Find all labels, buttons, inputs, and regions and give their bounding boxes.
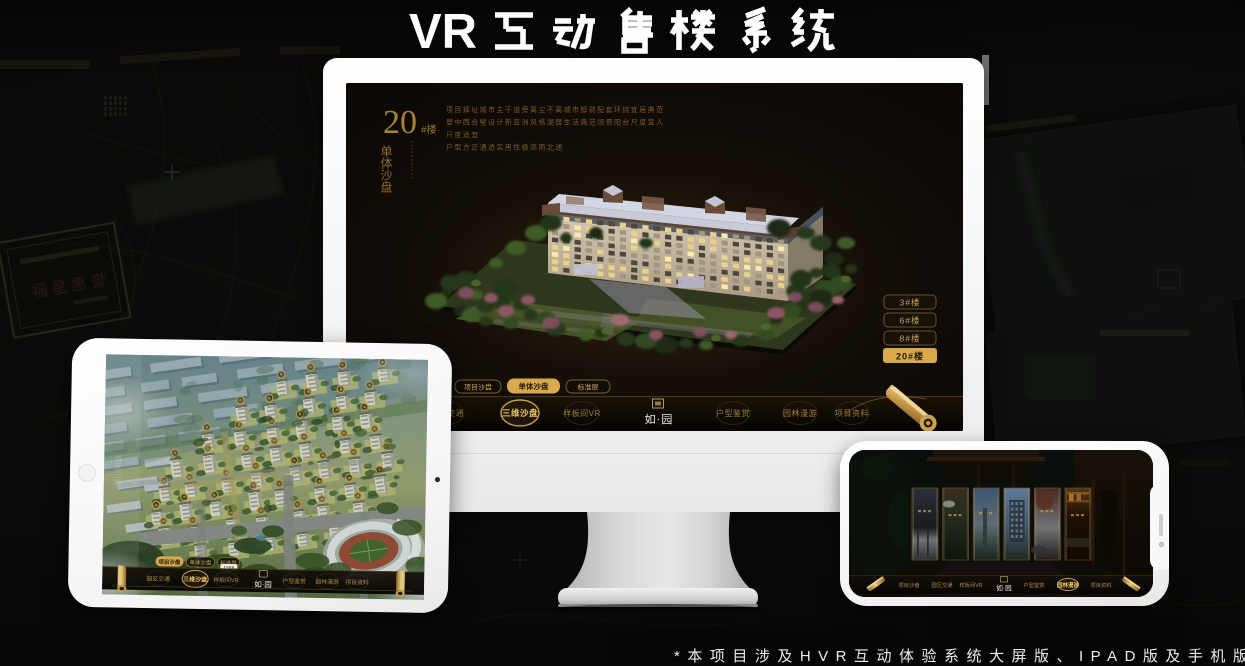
svg-text:单体沙盘: 单体沙盘 [379,145,393,193]
svg-text:3#楼: 3#楼 [900,298,921,308]
svg-text:园林漫游: 园林漫游 [1057,581,1080,589]
svg-text:样板间VR: 样板间VR [563,408,601,418]
svg-text:户型鉴赏: 户型鉴赏 [716,408,750,418]
svg-text:尺度适宜: 尺度适宜 [446,130,480,139]
svg-text:如·园: 如·园 [645,412,674,426]
svg-text:园区交通: 园区交通 [931,581,953,589]
svg-text:8#楼: 8#楼 [900,334,921,344]
svg-text:项目择址城市主干道旁离尘不离城市醇熟配套环绕宜居典范: 项目择址城市主干道旁离尘不离城市醇熟配套环绕宜居典范 [446,105,664,114]
svg-text:户型方正通透实用性极高南北通: 户型方正通透实用性极高南北通 [446,143,564,152]
svg-text:居中西合璧设计新亚洲风格湖居生活典范阔景阳台尺度宜人: 居中西合璧设计新亚洲风格湖居生活典范阔景阳台尺度宜人 [446,118,664,127]
svg-text:项目沙盘: 项目沙盘 [898,581,920,589]
svg-text:单体沙盘: 单体沙盘 [519,381,549,391]
svg-text:户型鉴赏: 户型鉴赏 [1023,581,1044,589]
svg-text:如·园: 如·园 [254,579,272,589]
svg-text:20: 20 [383,104,417,141]
svg-text:6#楼: 6#楼 [900,316,921,326]
svg-text:园林漫游: 园林漫游 [783,408,817,418]
svg-text:项目资料: 项目资料 [1090,581,1112,589]
svg-text:VR: VR [409,5,477,58]
svg-text:标准层: 标准层 [578,383,599,392]
svg-text:如·园: 如·园 [996,583,1011,592]
svg-text:样板间VR: 样板间VR [959,581,982,589]
svg-text:三维沙盘: 三维沙盘 [502,408,538,418]
svg-text:项目沙盘: 项目沙盘 [464,383,492,392]
svg-text:20#楼: 20#楼 [896,351,924,362]
svg-text:#楼: #楼 [421,123,437,136]
